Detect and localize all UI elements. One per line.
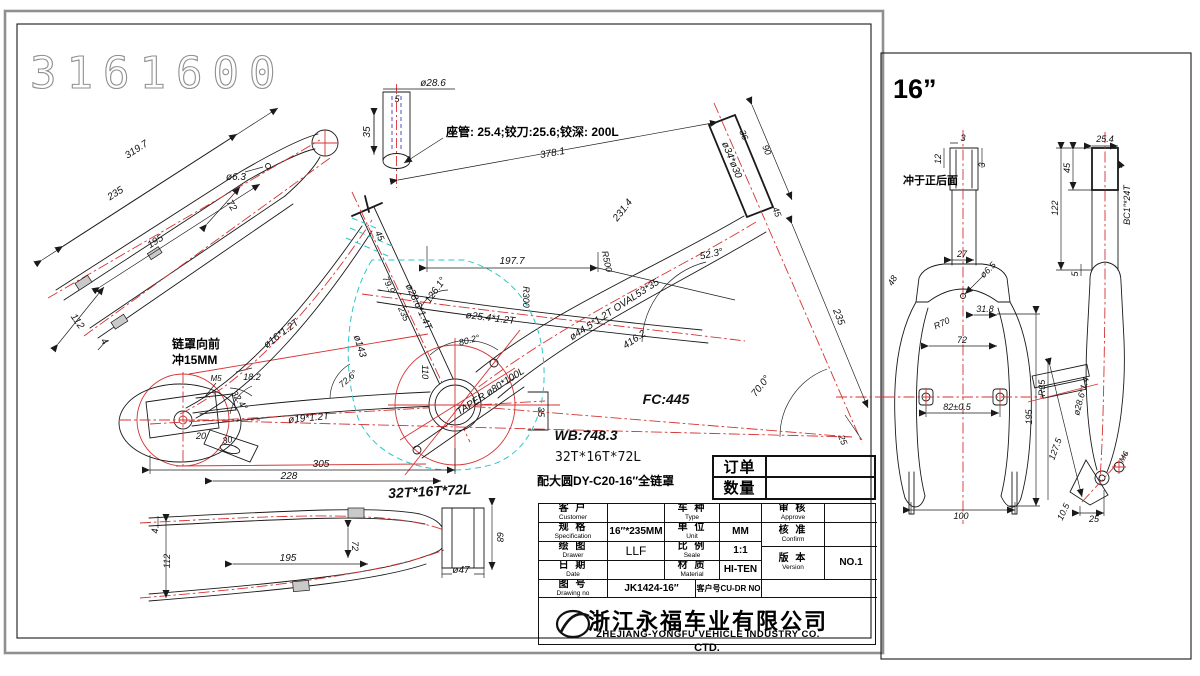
order-value bbox=[767, 457, 874, 476]
fdim-r35: R35 bbox=[1037, 379, 1047, 397]
fdim-48: 48 bbox=[886, 274, 900, 288]
dim-bb-angle-72: 72.6° bbox=[337, 368, 360, 390]
dim-tt-197: 197.7 bbox=[499, 256, 524, 267]
tb-drawer-label: 绘 图Drawer bbox=[539, 542, 608, 561]
seat-cluster bbox=[352, 196, 382, 216]
tb-drawer-value: LLF bbox=[608, 542, 665, 561]
company-name-en: ZHEJIANG-YONGFU VEHICLE INDUSTRY CO. bbox=[596, 629, 820, 640]
seatpost-note: 座管: 25.4;铰刀:25.6;铰深: 200L bbox=[445, 124, 619, 139]
dim-head-45: 45 bbox=[770, 205, 783, 219]
fdim-72: 72 bbox=[957, 335, 967, 345]
tb-type-label: 车 种Type bbox=[665, 504, 720, 523]
title-block: 客 户 Customer 车 种Type 审 核Approve 规 格Speci… bbox=[538, 503, 876, 645]
dim-seatstay-total: 319.7 bbox=[123, 138, 150, 161]
dim-bb-angle-80: 80.2° bbox=[458, 332, 481, 347]
fdim-r70: R70 bbox=[932, 315, 951, 331]
order-label: 订单 bbox=[714, 457, 767, 476]
tb-confirm-label: 核 准Confirm bbox=[762, 523, 825, 547]
dim-dropout-20: 20 bbox=[195, 431, 206, 441]
dim-cs-47: ø47 bbox=[452, 565, 470, 576]
tb-unit-value: MM bbox=[720, 523, 762, 542]
dim-seatstay-235: 235 bbox=[105, 185, 126, 204]
tb-customer-value bbox=[608, 504, 665, 523]
dim-cs-72: 72 bbox=[350, 541, 360, 551]
fork-punch-note: 冲于正后面 bbox=[903, 173, 958, 187]
tb-version-label: 版 本Version bbox=[762, 547, 825, 580]
tb-approve-label: 审 核Approve bbox=[762, 504, 825, 523]
fdim-254: 25.4 bbox=[1095, 134, 1114, 144]
chaincover-outline bbox=[348, 260, 544, 470]
fdim-27: 27 bbox=[956, 249, 968, 259]
tb-scale-label: 比 例Seale bbox=[665, 542, 720, 561]
dim-tt-r300: R300 bbox=[521, 286, 531, 308]
dim-cs-228: 228 bbox=[280, 471, 298, 482]
fdim-100: 100 bbox=[953, 511, 968, 521]
chaincover-spec: 配大圆DY-C20-16″全链罩 bbox=[537, 473, 674, 488]
fdim-12: 12 bbox=[933, 154, 943, 164]
fork-side-view: 25.4 45 122 BC1″*24T 5 R35 ø28.6*1.4 127… bbox=[1028, 132, 1132, 524]
tb-type-value bbox=[720, 504, 762, 523]
dim-seattube-79: 79.9 bbox=[380, 275, 396, 295]
dim-seatstay-72: 72 bbox=[223, 198, 239, 214]
fdim-318: 31.8 bbox=[976, 304, 994, 314]
seatstay-tube bbox=[186, 226, 372, 418]
dim-seatstay-dia: ø16*1.2T bbox=[262, 317, 302, 351]
chaincover-note-1: 链罩向前 bbox=[172, 336, 220, 351]
dim-seatstay-hole: ø6.3 bbox=[226, 172, 246, 183]
dim-bb-110: 110 bbox=[420, 365, 430, 379]
fdim-105: 10.5 bbox=[1055, 501, 1072, 522]
tb-approve-value bbox=[825, 504, 877, 523]
tb-scale-value: 1:1 bbox=[720, 542, 762, 561]
dim-head-235: 235 bbox=[830, 306, 847, 327]
qty-value bbox=[767, 478, 874, 499]
dim-bb-35: 35 bbox=[536, 407, 546, 418]
tb-customer-en: Customer bbox=[559, 515, 587, 522]
tb-spec-value: 16″*235MM bbox=[608, 523, 665, 542]
company-logo-icon bbox=[553, 606, 599, 640]
tb-drawno-value: JK1424-16″ bbox=[608, 580, 696, 598]
tb-material-value: HI-TEN bbox=[720, 561, 762, 580]
fdim-m6: M6 bbox=[1117, 449, 1131, 464]
dim-cs-112: 112 bbox=[162, 554, 172, 568]
dim-dropout-30: 30 bbox=[221, 434, 233, 446]
frame-main-view: 链罩向前 冲15MM 378.1 36 90 ø34*ø30 45 52.3° … bbox=[119, 103, 884, 482]
dim-toptube-378: 378.1 bbox=[539, 146, 566, 161]
tb-date-label: 日 期Date bbox=[539, 561, 608, 580]
dim-midtube-dia: ø25.4*1.2T bbox=[465, 310, 516, 327]
fork-front-view: 16” 3 12 3 冲于正后面 27 ø6.5 48 31.8 R bbox=[884, 74, 1044, 524]
dim-downtube-416: 416.2 bbox=[621, 328, 648, 351]
tb-drawno-label: 图 号Drawing no bbox=[539, 580, 608, 598]
company-name-en-2: CTD. bbox=[538, 642, 876, 654]
qty-label: 数量 bbox=[714, 478, 767, 499]
tb-date-value bbox=[608, 561, 665, 580]
fdim-thread: BC1″*24T bbox=[1122, 184, 1132, 225]
dim-dropout-18: 18.2 bbox=[243, 372, 261, 382]
dim-head-36: 36 bbox=[737, 128, 750, 141]
fdim-82: 82±0.5 bbox=[943, 402, 971, 412]
fork-size-label: 16” bbox=[893, 74, 937, 104]
dim-tt-r500: R500 bbox=[600, 250, 614, 273]
dim-tt-angle-126: 126.1° bbox=[423, 276, 449, 306]
dim-head-angle-52: 52.3° bbox=[699, 247, 724, 263]
chaincover-note-2: 冲15MM bbox=[172, 352, 217, 367]
fdim-3b: 3 bbox=[977, 162, 987, 167]
fdim-dia: ø28.6*1.4 bbox=[1071, 376, 1091, 416]
dim-seatstay-4: 4 bbox=[98, 336, 110, 347]
tb-version-value: NO.1 bbox=[825, 547, 877, 580]
seatpost-detail-view: ø28.6 5 35 座管: 25.4;铰刀:25.6;铰深: 200L bbox=[362, 78, 619, 188]
tb-material-label: 材 质Material bbox=[665, 561, 720, 580]
gear-spec: 32T*16T*72L bbox=[555, 450, 641, 465]
dim-cs-305: 305 bbox=[313, 459, 330, 470]
dim-head-90: 90 bbox=[760, 143, 773, 156]
fdim-65: ø6.5 bbox=[978, 259, 999, 280]
drawing-number: 3161600 bbox=[30, 48, 285, 99]
dim-seatpost-dia: ø28.6 bbox=[420, 78, 446, 89]
dim-tt-231: 231.4 bbox=[610, 197, 635, 225]
dim-seatpost-5: 5 bbox=[394, 94, 400, 104]
seatstay-detail-view: 319.7 235 195 72 ø6.3 112 4 bbox=[42, 108, 338, 350]
tb-customer-label: 客 户 Customer bbox=[539, 504, 608, 523]
fdim-1275: 127.5 bbox=[1047, 436, 1064, 462]
fdim-45: 45 bbox=[1062, 162, 1072, 173]
tb-company: 浙江永福车业有限公司 ZHEJIANG-YONGFU VEHICLE INDUS… bbox=[539, 598, 877, 646]
fdim-25: 25 bbox=[1088, 514, 1100, 524]
fdim-3a: 3 bbox=[960, 133, 965, 143]
tb-spec-label: 规 格Specification bbox=[539, 523, 608, 542]
dim-cs-68: 68 bbox=[495, 532, 505, 542]
tb-unit-label: 单 位Unit bbox=[665, 523, 720, 542]
tb-custno-label: 客户号CU-DR NO bbox=[696, 580, 762, 598]
cad-drawing-viewport: 3161600 319.7 235 195 72 ø6.3 112 4 ø28.… bbox=[0, 0, 1200, 676]
tb-custno-value bbox=[762, 580, 877, 598]
dim-head-angle-70: 70.0° bbox=[749, 374, 772, 399]
fdim-195: 195 bbox=[1024, 409, 1034, 425]
tb-customer-cn: 客 户 bbox=[559, 504, 588, 514]
dim-fork-offset: 25 bbox=[836, 432, 850, 447]
order-box: 订单 数量 bbox=[712, 455, 876, 500]
dim-wb: WB:748.3 bbox=[554, 427, 617, 443]
dim-fc: FC:445 bbox=[643, 391, 690, 407]
fdim-122: 122 bbox=[1050, 200, 1060, 215]
gear-spec-italic: 32T*16T*72L bbox=[388, 481, 472, 501]
dim-cs-4: 4 bbox=[150, 528, 160, 533]
chainstay-bottom-view: 4 112 195 72 68 ø47 32T*16T*72L bbox=[140, 481, 505, 601]
tb-confirm-value bbox=[825, 523, 877, 547]
dim-seatpost-35: 35 bbox=[362, 126, 373, 138]
dim-dropout-m5: M5 bbox=[210, 374, 222, 383]
fdim-5: 5 bbox=[1070, 271, 1080, 277]
dim-cs-195: 195 bbox=[280, 553, 297, 564]
